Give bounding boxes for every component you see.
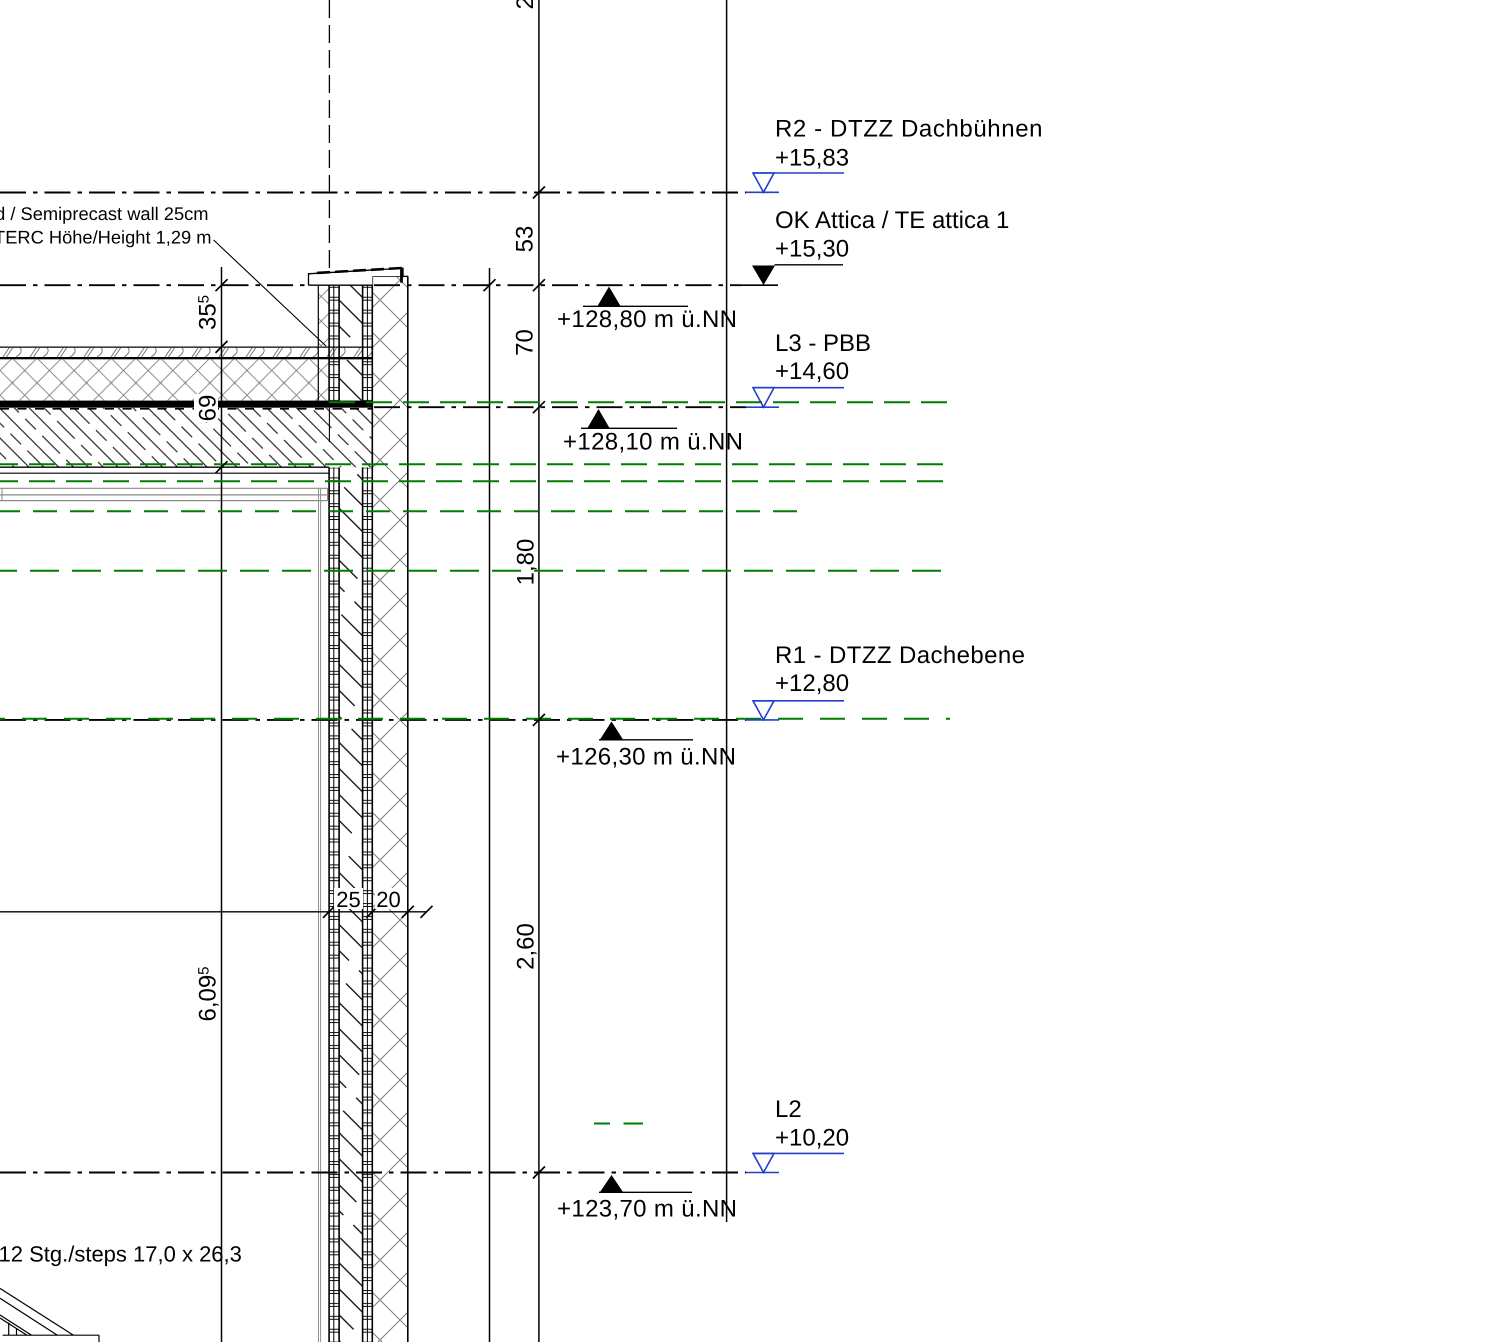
svg-text:20: 20 [376,887,400,912]
svg-text:53: 53 [512,226,539,253]
svg-text:+128,10 m ü.NN: +128,10 m ü.NN [563,429,743,456]
svg-text:OK Attica / TE attica 1: OK Attica / TE attica 1 [775,207,1009,234]
svg-text:2,41: 2,41 [512,0,539,10]
svg-text:R1 - DTZZ Dachebene: R1 - DTZZ Dachebene [775,642,1025,669]
svg-text:L3 - PBB: L3 - PBB [775,330,871,357]
svg-text:12 Stg./steps 17,0 x 26,3: 12 Stg./steps 17,0 x 26,3 [0,1242,242,1267]
svg-text:+15,30: +15,30 [775,236,849,263]
svg-text:+15,83: +15,83 [775,145,849,172]
svg-text:+14,60: +14,60 [775,358,849,385]
svg-text:69: 69 [195,395,222,422]
svg-text:+12,80: +12,80 [775,670,849,697]
svg-text:WDVS INTERC Höhe/Height 1,29 m: WDVS INTERC Höhe/Height 1,29 m [0,227,212,248]
svg-text:+128,80 m ü.NN: +128,80 m ü.NN [557,306,737,333]
svg-text:70: 70 [512,329,539,356]
svg-text:+126,30 m ü.NN: +126,30 m ü.NN [556,744,736,771]
svg-text:1,80: 1,80 [513,539,540,586]
svg-text:R2 - DTZZ Dachbühnen: R2 - DTZZ Dachbühnen [775,116,1043,143]
svg-text:L2: L2 [775,1096,802,1123]
svg-text:25: 25 [336,887,360,912]
svg-text:Halbfertigteilwand / Semipreca: Halbfertigteilwand / Semiprecast wall 25… [0,203,209,224]
svg-text:+123,70 m ü.NN: +123,70 m ü.NN [557,1196,737,1223]
svg-text:2,60: 2,60 [513,923,540,970]
svg-text:+10,20: +10,20 [775,1125,849,1152]
